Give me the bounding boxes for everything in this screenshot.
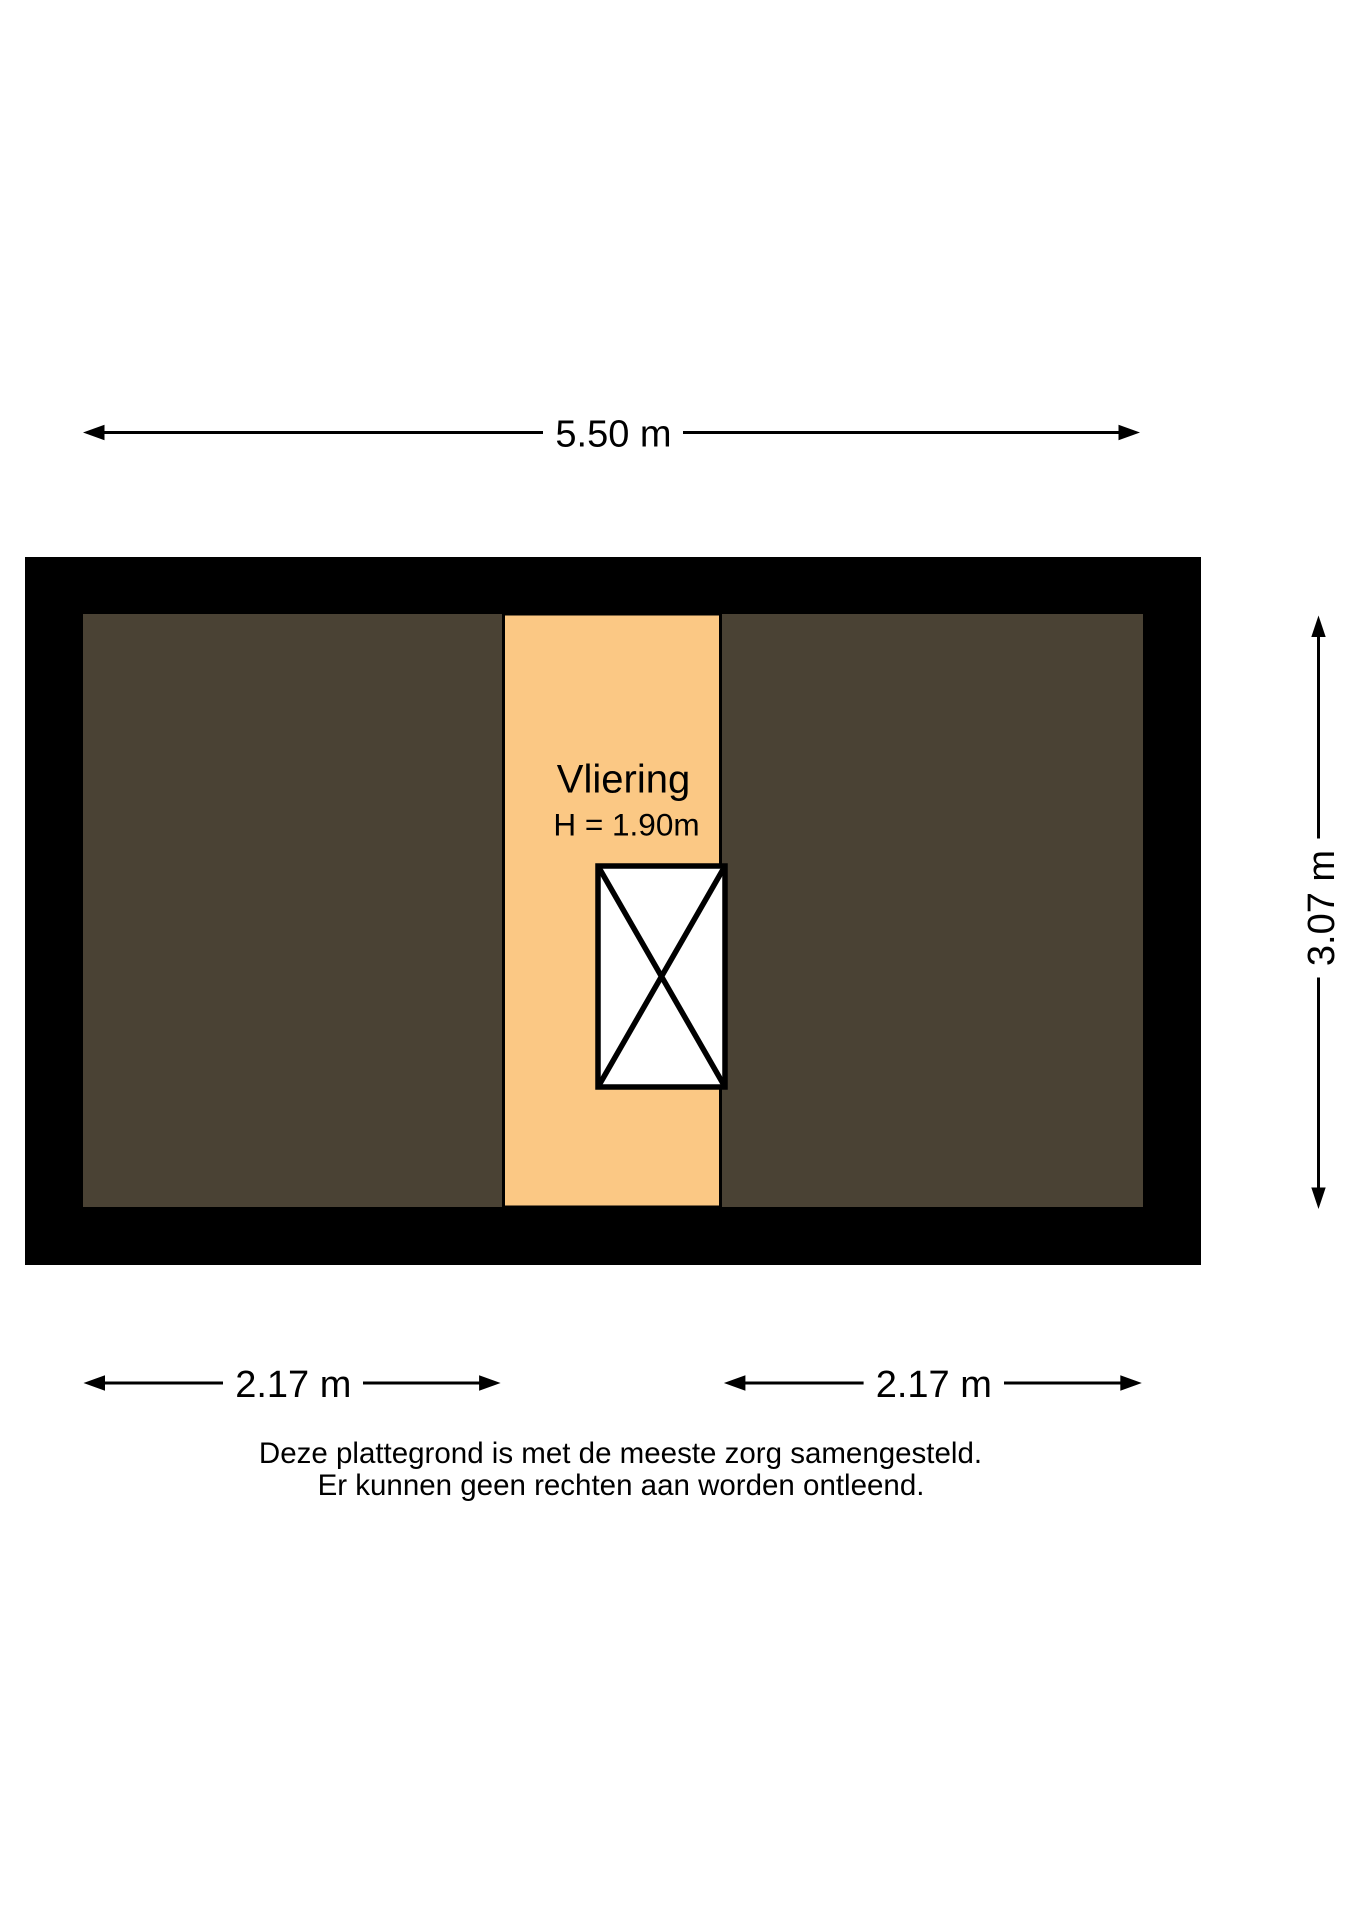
svg-text:Deze plattegrond is met de mee: Deze plattegrond is met de meeste zorg s… <box>259 1437 982 1470</box>
svg-text:Er kunnen geen rechten aan wor: Er kunnen geen rechten aan worden ontlee… <box>318 1469 925 1502</box>
svg-text:2.17 m: 2.17 m <box>235 1364 351 1406</box>
svg-text:2.17 m: 2.17 m <box>876 1364 992 1406</box>
svg-text:H = 1.90m: H = 1.90m <box>553 806 699 842</box>
svg-text:5.50 m: 5.50 m <box>555 413 671 455</box>
svg-text:Vliering: Vliering <box>557 758 690 802</box>
svg-text:3.07 m: 3.07 m <box>1301 850 1343 966</box>
